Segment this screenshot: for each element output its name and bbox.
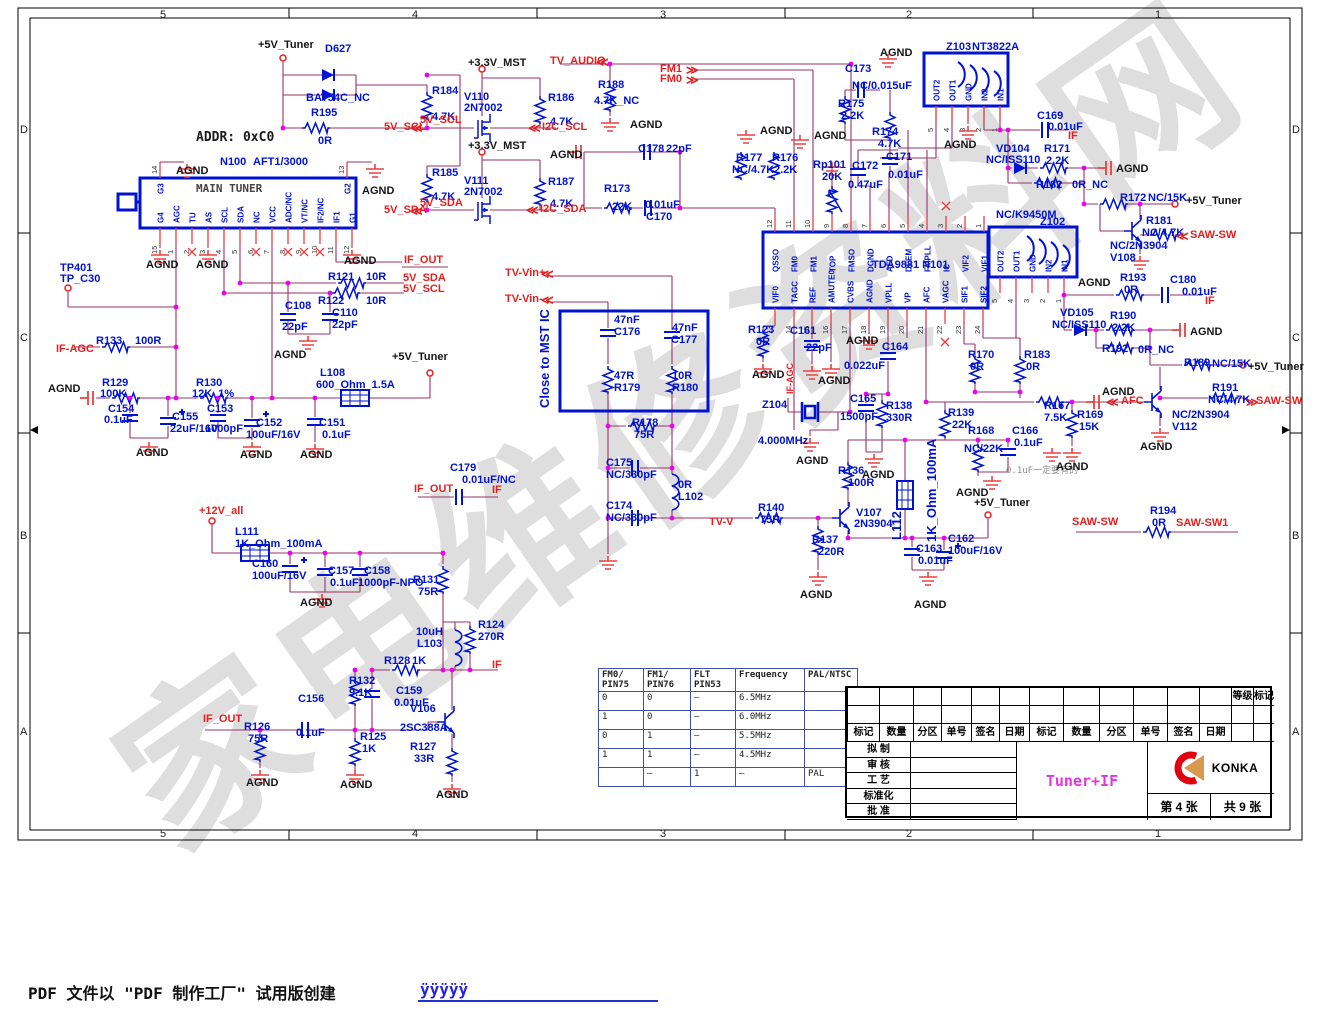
label: R179: [614, 383, 640, 394]
svg-text:TDA9881 N101: TDA9881 N101: [872, 259, 948, 271]
label: 2N7002: [464, 187, 503, 198]
junction-dot: [370, 668, 375, 673]
table-cell: –: [736, 768, 805, 787]
nmos-symbol: [474, 196, 490, 224]
approval-row-label: 拟 制: [847, 742, 911, 758]
junction-dot: [358, 551, 363, 556]
resv-symbol: [438, 566, 448, 594]
grid-row-label: D: [20, 124, 28, 136]
label: 10R: [366, 296, 386, 307]
label: 5V_SCL: [420, 115, 462, 126]
junction-dot: [1148, 328, 1153, 333]
label: AGND: [246, 778, 278, 789]
label: AGND: [196, 260, 228, 271]
svg-text:4: 4: [942, 128, 951, 132]
title-block-cell: [879, 706, 913, 724]
grid-row-label: D: [1292, 124, 1300, 136]
svg-text:17: 17: [840, 326, 849, 334]
junction-dot: [924, 400, 929, 405]
label: AGND: [340, 780, 372, 791]
label: ≫: [686, 74, 697, 86]
label: V112: [1172, 422, 1197, 433]
label: 220R: [818, 547, 844, 558]
label: R186: [548, 93, 574, 104]
label: IF-AGC: [56, 344, 94, 355]
junction-dot: [998, 128, 1003, 133]
svg-text:9: 9: [822, 224, 831, 228]
label: 2.2K: [1112, 323, 1135, 334]
svg-text:VAGC: VAGC: [942, 280, 951, 303]
ic: 5OUT24OUT13GND2IN21IN1: [989, 227, 1077, 303]
junction-dot: [846, 536, 851, 541]
junction-dot: [441, 551, 446, 556]
npn-symbol: [832, 502, 849, 534]
resv-symbol: [603, 366, 613, 394]
label: R124: [478, 620, 504, 631]
title-block-cell: [1231, 724, 1253, 742]
capv-symbol: [280, 314, 296, 320]
label: AGND: [956, 488, 988, 499]
label: ≪: [1176, 230, 1187, 242]
label: 10uH: [416, 627, 443, 638]
pot-symbol: [827, 186, 842, 214]
svg-text:12: 12: [765, 220, 774, 228]
svg-text:QSSO: QSSO: [772, 249, 781, 272]
label: 7.5K: [1044, 413, 1067, 424]
xnc-symbol: [942, 202, 950, 210]
gnd-symbol: [1063, 448, 1081, 461]
svg-text:IF2/NC: IF2/NC: [317, 197, 326, 223]
title-block-cell: 标记: [1253, 688, 1274, 706]
approval-row-label: 工 艺: [847, 773, 911, 789]
svg-text:GND: GND: [965, 83, 974, 101]
label: 2.2K: [1046, 156, 1069, 167]
junction-dot: [353, 728, 358, 733]
grid-row-label: B: [1292, 530, 1299, 542]
label: 15K: [1079, 422, 1099, 433]
label: AGND: [944, 140, 976, 151]
label: 75R: [418, 587, 438, 598]
label: 0.47uF: [848, 180, 883, 191]
term-symbol: [427, 370, 433, 376]
approval-row-label: 审 核: [847, 758, 911, 774]
title-block-cell: [1099, 706, 1133, 724]
title-block-cell: [1231, 706, 1253, 724]
label: 20K: [822, 172, 842, 183]
grid-row-label: A: [20, 726, 27, 738]
gnd-symbol: [1043, 448, 1061, 461]
label: IF_OUT: [404, 255, 443, 266]
label: 22pF: [666, 144, 692, 155]
svg-text:SIF1: SIF1: [961, 286, 970, 303]
label: IF: [492, 660, 502, 671]
table-cell: 1: [691, 768, 736, 787]
title-block-cell: [941, 688, 971, 706]
label: +5V_Tuner: [392, 352, 448, 363]
title-block-cell: [1133, 706, 1167, 724]
caph-symbol: [1162, 287, 1168, 303]
svg-text:12: 12: [342, 246, 351, 254]
label: SAW-SW: [1072, 517, 1118, 528]
label: AGND: [300, 450, 332, 461]
svg-text:G4: G4: [157, 212, 166, 223]
label: 0.1uF: [330, 578, 359, 589]
label: AGND: [1140, 442, 1172, 453]
label: NC/0.015uF: [852, 81, 912, 92]
junction-dot: [174, 305, 179, 310]
label: 5V_SCL: [403, 284, 445, 295]
sheet-number: 第 4 张: [1148, 794, 1211, 820]
label: 1K: [412, 656, 426, 667]
label: NC/4.7K: [1208, 395, 1250, 406]
label: AGND: [240, 450, 272, 461]
label: 47nF: [614, 315, 640, 326]
label: SAW-SW: [1256, 396, 1302, 407]
label: R125: [360, 732, 386, 743]
title-block-cell: [879, 688, 913, 706]
label: 33R: [414, 754, 434, 765]
sheet-total: 共 9 张: [1211, 794, 1274, 820]
label: C151: [319, 418, 345, 429]
label: +5V_Tuner: [258, 40, 314, 51]
pdf-footer-link[interactable]: ÿÿÿÿÿ: [420, 980, 468, 999]
label: R138: [886, 401, 912, 412]
label: 0R_NC: [1072, 180, 1108, 191]
svg-text:AFC: AFC: [923, 286, 932, 303]
title-block-cell: 日期: [1199, 724, 1231, 742]
label: AGND: [800, 590, 832, 601]
table-row: 10–6.0MHz: [599, 711, 858, 730]
table-cell: –: [691, 749, 736, 768]
svg-text:4: 4: [917, 224, 926, 228]
label: R180: [672, 383, 698, 394]
junction-dot: [1006, 438, 1011, 443]
approval-row-blank: [911, 773, 1017, 789]
junction-dot: [222, 291, 227, 296]
label: ≪: [541, 268, 552, 280]
resv-symbol: [1067, 410, 1077, 438]
label: IF_OUT: [414, 484, 453, 495]
title-block-cell: [847, 688, 879, 706]
label: 0.1uF: [104, 415, 133, 426]
label: R175: [838, 99, 864, 110]
title-block-cell: 数量: [1063, 724, 1099, 742]
table-row: –1–PAL: [599, 768, 858, 787]
caph-symbol: [456, 489, 462, 505]
junction-dot: [250, 396, 255, 401]
label: R194: [1150, 506, 1176, 517]
antenna-connector: [118, 194, 141, 210]
label: 10R: [672, 371, 692, 382]
approval-row-blank: [911, 742, 1017, 758]
diode-symbol: [322, 69, 334, 81]
label: ≪: [410, 205, 421, 217]
label: 100uF/16V: [252, 571, 306, 582]
label: R183: [1024, 350, 1050, 361]
beadh-symbol: [341, 390, 369, 406]
label: 100uF/16V: [948, 546, 1002, 557]
label: 2.2K: [841, 111, 864, 122]
label: 0R: [970, 362, 984, 373]
svg-text:AGC: AGC: [173, 205, 182, 223]
label: 75R: [760, 515, 780, 526]
svg-text:5: 5: [898, 224, 907, 228]
grid-col-label: 4: [412, 828, 418, 840]
svg-text:REF: REF: [809, 287, 818, 303]
svg-text:NC: NC: [253, 211, 262, 223]
label: 100R: [135, 336, 161, 347]
label: R127: [410, 742, 436, 753]
label: 5V_SDA: [420, 198, 463, 209]
ic: 12QSSO11FM010FM19TOP8FMSO7DGND6AFD5DEEM4…: [763, 216, 990, 334]
label: 0.01uF: [918, 556, 953, 567]
junction-dot: [670, 424, 675, 429]
svg-text:VIF2: VIF2: [962, 255, 971, 272]
junction-dot: [973, 390, 978, 395]
label: +3.3V_MST: [468, 58, 526, 69]
title-block-cell: [913, 688, 941, 706]
label: R181: [1146, 216, 1172, 227]
label: 2N3904: [854, 519, 893, 530]
label: C173: [845, 64, 871, 75]
svg-text:VIF0: VIF0: [772, 286, 781, 303]
label: 0.01uF/NC: [462, 475, 516, 486]
label: R169: [1077, 410, 1103, 421]
title-block-cell: 等级: [1231, 688, 1253, 706]
label: R174: [872, 127, 898, 138]
label: R192: [1102, 344, 1128, 355]
npn-symbol: [1144, 386, 1161, 418]
table-cell: 5.5MHz: [736, 730, 805, 749]
title-block-cell: [1253, 724, 1274, 742]
label: R133: [96, 336, 122, 347]
label: Close to MST IC: [538, 309, 551, 408]
label: V106: [410, 704, 436, 715]
svg-text:6: 6: [879, 224, 888, 228]
coil-symbol: [455, 630, 462, 666]
nmos-symbol: [474, 114, 490, 142]
label: R126: [244, 722, 270, 733]
approval-row-label: 批 准: [847, 804, 911, 820]
label: R178: [632, 418, 658, 429]
label: R187: [548, 177, 574, 188]
title-block-cell: [1167, 688, 1199, 706]
gnd-symbol: [299, 336, 317, 349]
label: C166: [1012, 426, 1038, 437]
capv-symbol: [880, 353, 896, 359]
label: R188: [598, 80, 624, 91]
xnc-symbol: [941, 338, 949, 346]
label: C156: [298, 694, 324, 705]
label: AGND: [1190, 327, 1222, 338]
junction-dot: [670, 466, 675, 471]
label: AGND: [300, 598, 332, 609]
title-block-cell: 签名: [1167, 724, 1199, 742]
title-block-cell: [1199, 688, 1231, 706]
label: C159: [396, 686, 422, 697]
label: 22pF: [282, 322, 308, 333]
label: R176: [772, 153, 798, 164]
label: AGND: [274, 350, 306, 361]
title-block-cell: [971, 706, 999, 724]
grid-row-label: C: [20, 332, 28, 344]
label: SAW-SW1: [1176, 518, 1228, 529]
gnd-symbol: [599, 556, 617, 569]
label: Z104: [762, 400, 787, 411]
junction-dot: [816, 516, 821, 521]
label: AGND: [1078, 278, 1110, 289]
svg-text:FM0: FM0: [791, 255, 800, 272]
gnd-symbol: [737, 130, 755, 143]
junction-dot: [174, 345, 179, 350]
svg-text:24: 24: [973, 326, 982, 334]
svg-text:VT/NC: VT/NC: [301, 199, 310, 223]
junction-dot: [1006, 128, 1011, 133]
svg-text:G2: G2: [344, 183, 353, 194]
svg-text:TOP: TOP: [829, 255, 838, 272]
label: R172: [1120, 193, 1146, 204]
title-block-cell: 标记: [1029, 724, 1063, 742]
label: IF: [492, 485, 502, 496]
svg-text:4: 4: [214, 250, 223, 254]
title-block-cell: [1167, 706, 1199, 724]
label: 12K 1%: [192, 389, 234, 400]
title-block: 等级标记标记数量分区单号签名日期标记数量分区单号签名日期 拟 制审 核工 艺标准…: [845, 686, 1272, 818]
grid-col-label: 1: [1155, 9, 1161, 21]
label: ≪: [526, 204, 537, 216]
label: AGND: [48, 384, 80, 395]
junction-dot: [976, 438, 981, 443]
title-block-cell: [1029, 688, 1063, 706]
label: AGND: [630, 120, 662, 131]
svg-text:VPLL: VPLL: [885, 282, 894, 303]
junction-dot: [1082, 166, 1087, 171]
label: 0R_NC: [1138, 345, 1174, 356]
title-block-cell: [1063, 688, 1099, 706]
label: FM0: [660, 74, 682, 85]
label: 2.2K: [774, 165, 797, 176]
svg-text:VCC: VCC: [269, 206, 278, 223]
label: L108: [320, 368, 345, 379]
label: R170: [968, 350, 994, 361]
ic: 5OUT24OUT13GND2IN21IN1: [924, 53, 1008, 132]
table-cell: –: [691, 692, 736, 711]
label: 22pF: [332, 320, 358, 331]
label: NC/330pF: [606, 513, 657, 524]
svg-text:5: 5: [990, 299, 999, 303]
label: AGND: [344, 256, 376, 267]
label: AGND: [914, 600, 946, 611]
label: 47nF: [672, 323, 698, 334]
label: ≫: [1246, 396, 1257, 408]
title-block-cell: 单号: [941, 724, 971, 742]
label: R190: [1110, 311, 1136, 322]
svg-text:OUT1: OUT1: [1013, 250, 1022, 272]
label: R171: [1044, 144, 1070, 155]
junction-dot: [1082, 202, 1087, 207]
label: 4.7K_NC: [594, 96, 639, 107]
junction-dot: [886, 392, 891, 397]
svg-text:OUT2: OUT2: [997, 250, 1006, 272]
junction-dot: [903, 438, 908, 443]
svg-text:3: 3: [1022, 299, 1031, 303]
label: R139: [948, 408, 974, 419]
resv-symbol: [465, 626, 475, 654]
table-header: Frequency: [736, 669, 805, 692]
label: SAW-SW: [1190, 230, 1236, 241]
svg-text:4: 4: [1006, 299, 1015, 303]
label: R122: [318, 296, 344, 307]
resv-symbol: [535, 178, 545, 206]
table-cell: 6.5MHz: [736, 692, 805, 711]
svg-text:CVBS: CVBS: [847, 280, 856, 303]
label: NC/15K: [1212, 359, 1251, 370]
label: C180: [1170, 275, 1196, 286]
label: V108: [1110, 253, 1136, 264]
svg-text:5: 5: [230, 250, 239, 254]
label: ≪: [410, 122, 421, 134]
gndc-symbol: [80, 391, 93, 405]
label: AGND: [796, 456, 828, 467]
beadv-symbol: [897, 481, 913, 509]
label: R137: [812, 535, 838, 546]
label: N100: [220, 157, 246, 168]
term-symbol: [985, 512, 991, 518]
label: BAT54C_NC: [306, 93, 370, 104]
title-block-cell: [1199, 706, 1231, 724]
label: AGND: [362, 186, 394, 197]
svg-text:1: 1: [166, 250, 175, 254]
table-cell: –: [644, 768, 691, 787]
title-block-cell: [1099, 688, 1133, 706]
label: R136: [838, 466, 864, 477]
svg-text:ADC/NC: ADC/NC: [285, 192, 294, 223]
junction-dot: [670, 516, 675, 521]
junction-dot: [450, 668, 455, 673]
label: C172: [852, 161, 878, 172]
label: 47R: [614, 371, 634, 382]
svg-text:VP: VP: [904, 292, 913, 303]
label: R185: [432, 168, 458, 179]
label: AGND: [752, 370, 784, 381]
grid-row-label: C: [1292, 332, 1300, 344]
label: L112: [890, 511, 903, 540]
svg-text:TU: TU: [189, 212, 198, 223]
ic: 14G313G215G41AGC2TU3AS4SCL5SDA6NC7VCC8AD…: [140, 162, 358, 254]
svg-text:16: 16: [821, 326, 830, 334]
junction-dot: [286, 281, 291, 286]
svg-text:FM1: FM1: [810, 255, 819, 272]
label: AGND: [880, 48, 912, 59]
junction-dot: [1006, 166, 1011, 171]
label: R167: [1044, 401, 1070, 412]
label: 0R: [1152, 518, 1166, 529]
gndc-symbol: [1098, 161, 1111, 175]
label: C161: [790, 326, 816, 337]
label: I2C_SCL: [542, 122, 587, 133]
junction-dot: [128, 396, 133, 401]
svg-text:3: 3: [198, 250, 207, 254]
title-block-cell: [913, 706, 941, 724]
grid-col-label: 3: [660, 9, 666, 21]
label: NC/22K: [964, 444, 1003, 455]
svg-text:3: 3: [936, 224, 945, 228]
label: 100K: [100, 389, 126, 400]
svg-text:11: 11: [784, 220, 793, 228]
table-cell: 0: [644, 692, 691, 711]
label: Z103: [946, 42, 971, 53]
label: 75R: [634, 430, 654, 441]
